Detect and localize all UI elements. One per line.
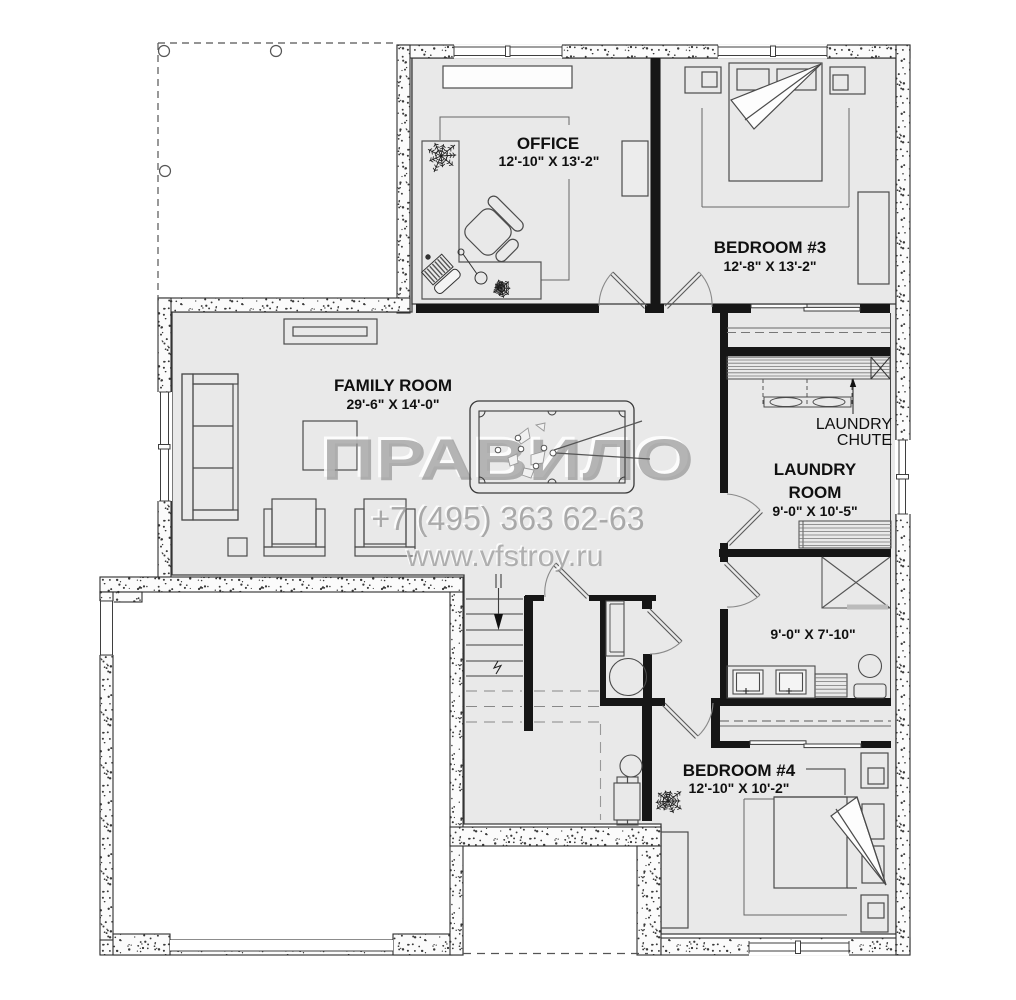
svg-text:CHUTE: CHUTE	[837, 432, 892, 449]
svg-text:12'-10" X 10'-2": 12'-10" X 10'-2"	[689, 780, 790, 796]
svg-text:FAMILY ROOM: FAMILY ROOM	[334, 376, 452, 395]
svg-text:9'-0" X 7'-10": 9'-0" X 7'-10"	[770, 626, 855, 642]
svg-text:29'-6" X 14'-0": 29'-6" X 14'-0"	[346, 396, 439, 412]
svg-text:LAUNDRY: LAUNDRY	[774, 460, 857, 479]
svg-text:9'-0" X 10'-5": 9'-0" X 10'-5"	[772, 503, 857, 519]
svg-text:www.vfstroy.ru: www.vfstroy.ru	[405, 540, 603, 573]
svg-text:12'-10" X 13'-2": 12'-10" X 13'-2"	[499, 153, 600, 169]
svg-text:LAUNDRY: LAUNDRY	[816, 416, 893, 433]
svg-text:OFFICE: OFFICE	[517, 134, 579, 153]
svg-text:12'-8" X 13'-2": 12'-8" X 13'-2"	[723, 258, 816, 274]
svg-text:+7 (495) 363 62-63: +7 (495) 363 62-63	[372, 500, 645, 537]
svg-text:ROOM: ROOM	[789, 483, 842, 502]
svg-text:BEDROOM #4: BEDROOM #4	[683, 761, 796, 780]
svg-text:BEDROOM #3: BEDROOM #3	[714, 238, 826, 257]
